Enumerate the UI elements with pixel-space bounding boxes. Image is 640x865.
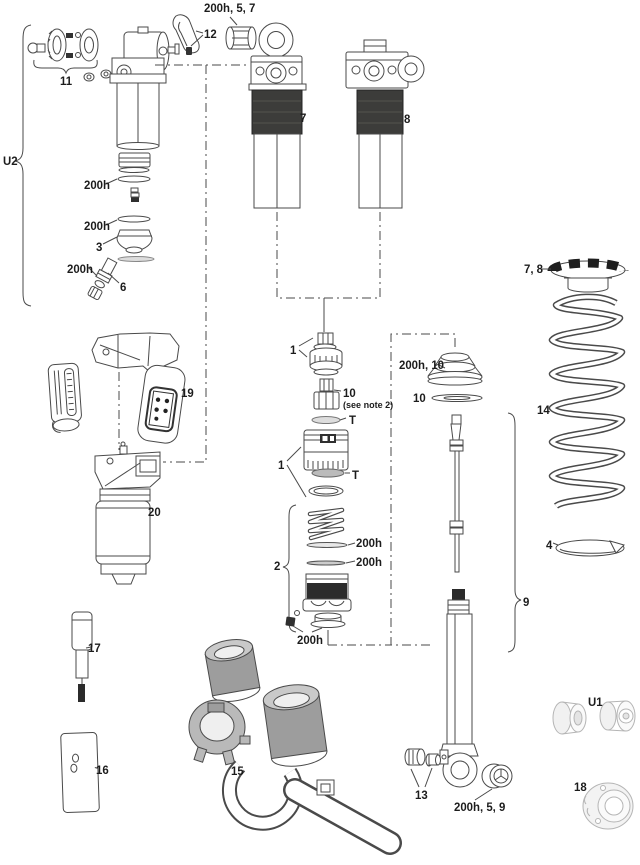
- label-16: 16: [96, 764, 109, 777]
- label-10-b: 10: [413, 392, 426, 405]
- part-15-service-kit: [189, 636, 390, 843]
- damper-body: [440, 589, 478, 787]
- label-7-8: 7, 8: [524, 263, 543, 276]
- label-12: 12: [204, 28, 217, 41]
- label-6: 6: [120, 281, 126, 294]
- part-16-block: [61, 732, 100, 812]
- part-1-top-cap: [299, 333, 342, 375]
- label-8: 8: [404, 113, 410, 126]
- label-bottom-valve: 200h: [297, 634, 323, 647]
- part-4-clip: [553, 540, 624, 556]
- label-eyelet-bushing: 200h, 5, 9: [454, 801, 505, 814]
- part-7-shock-assembly: [249, 23, 306, 208]
- label-top-bushing: 200h, 5, 7: [204, 2, 255, 15]
- part-2-damper-internals: [283, 505, 355, 632]
- label-10-a: 10: [343, 387, 356, 400]
- part-eyelet-bushing: [475, 764, 512, 800]
- label-boot: 200h, 10: [399, 359, 444, 372]
- part-17-shaft-tool: [72, 612, 92, 702]
- label-13: 13: [415, 789, 428, 802]
- label-15: 15: [231, 765, 244, 778]
- wrench: [229, 766, 390, 843]
- label-oring-b: 200h: [84, 220, 110, 233]
- part-1-piston-assembly: [287, 417, 350, 498]
- label-u2: U2: [3, 155, 18, 168]
- part-spring-retainer: [541, 261, 625, 292]
- label-17: 17: [88, 642, 101, 655]
- part-top-bushing: [226, 17, 256, 49]
- rebound-needle: [450, 415, 463, 572]
- label-9: 9: [523, 596, 529, 609]
- label-1-b: 1: [278, 459, 284, 472]
- label-14: 14: [537, 404, 550, 417]
- part-19-control-module: [92, 333, 187, 450]
- label-2: 2: [274, 560, 280, 573]
- label-t-b: T: [352, 469, 359, 482]
- label-7: 7: [300, 112, 306, 125]
- label-4: 4: [546, 539, 552, 552]
- diagram-artwork: [0, 0, 640, 865]
- label-valve-oring: 200h: [67, 263, 93, 276]
- shock-side-view: [110, 27, 179, 150]
- label-19: 19: [181, 387, 194, 400]
- part-9-bracket: [508, 413, 521, 652]
- label-3: 3: [96, 241, 102, 254]
- battery: [48, 363, 83, 433]
- part-10-fitting: [314, 379, 341, 409]
- part-8-shock-assembly: [346, 40, 424, 208]
- label-20: 20: [148, 506, 161, 519]
- label-note: (see note 2): [343, 401, 393, 411]
- part-10-washer: [432, 395, 482, 402]
- label-washer-b: 200h: [356, 556, 382, 569]
- label-u1: U1: [588, 696, 603, 709]
- exploded-parts-diagram: 200h, 5, 7 12 11 U2 200h 200h 3 200h 6 7…: [0, 0, 640, 865]
- part-18-spacer: [583, 783, 633, 829]
- label-oring-a: 200h: [84, 179, 110, 192]
- label-1-a: 1: [290, 344, 296, 357]
- label-washer-a: 200h: [356, 537, 382, 550]
- part-3-seal-head-stack: [103, 153, 154, 262]
- part-13-hardware: [405, 749, 441, 787]
- label-11: 11: [60, 75, 72, 88]
- label-t-a: T: [349, 414, 356, 427]
- label-18: 18: [574, 781, 587, 794]
- part-14-coil-spring: [552, 297, 622, 506]
